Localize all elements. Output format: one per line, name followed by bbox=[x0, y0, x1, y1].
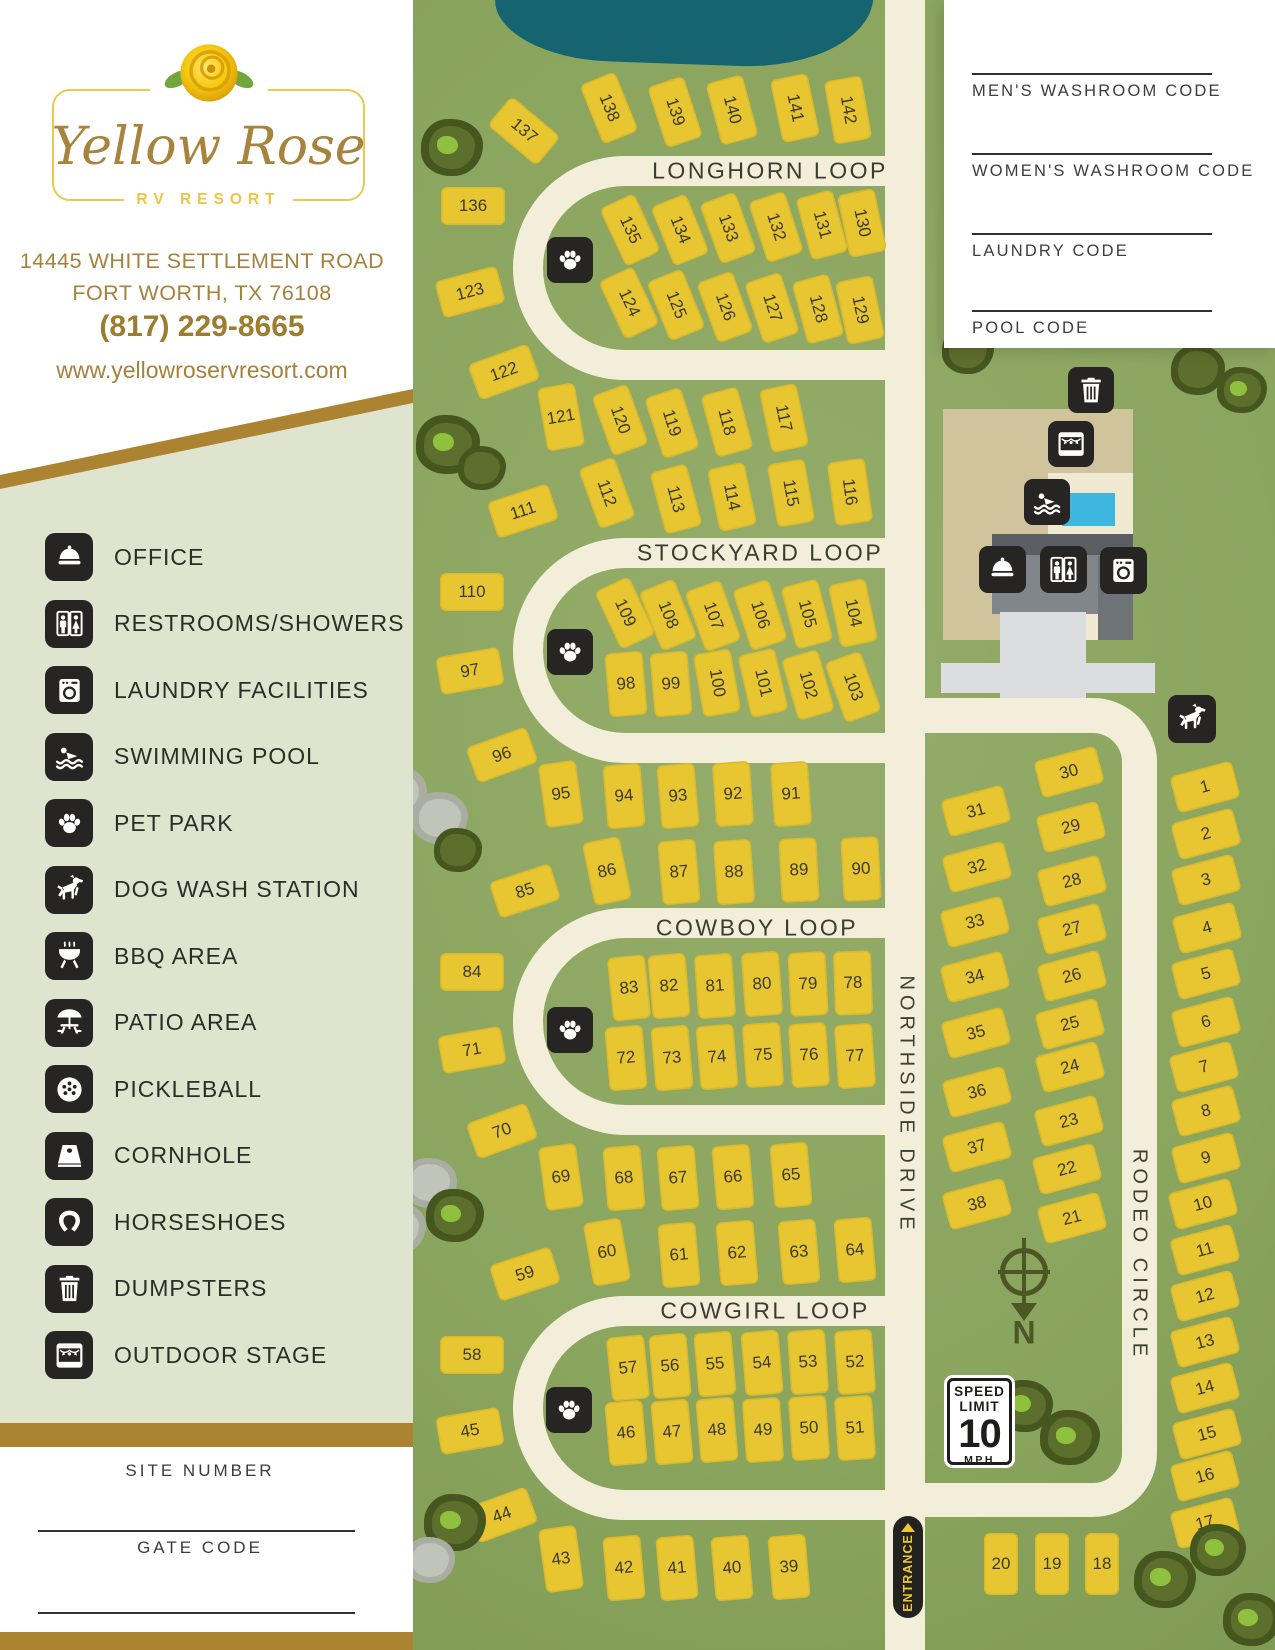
code-field-label: LAUNDRY CODE bbox=[972, 242, 1129, 261]
site-number: 22 bbox=[1055, 1157, 1078, 1181]
site-1[interactable]: 1 bbox=[1169, 760, 1241, 813]
site-121[interactable]: 121 bbox=[537, 382, 586, 452]
legend-item-label: LAUNDRY FACILITIES bbox=[114, 677, 369, 704]
legend-item-horseshoes: HORSESHOES bbox=[45, 1189, 395, 1256]
legend-item-pickleball: PICKLEBALL bbox=[45, 1056, 395, 1123]
laundry-icon bbox=[1100, 547, 1147, 594]
site-number: 19 bbox=[1043, 1554, 1062, 1574]
site-number-label: SITE NUMBER bbox=[0, 1461, 400, 1481]
site-number: 129 bbox=[847, 294, 872, 326]
site-number: 137 bbox=[507, 114, 542, 148]
paw-icon bbox=[547, 629, 593, 675]
site-50[interactable]: 50 bbox=[788, 1395, 830, 1461]
legend-item-label: OUTDOOR STAGE bbox=[114, 1342, 327, 1369]
site-14[interactable]: 14 bbox=[1169, 1361, 1241, 1414]
loop-name-label: LONGHORN LOOP bbox=[652, 158, 888, 185]
site-number: 8 bbox=[1199, 1100, 1213, 1122]
site-61[interactable]: 61 bbox=[657, 1221, 700, 1288]
site-number: 93 bbox=[668, 785, 689, 807]
legend-item-label: BBQ AREA bbox=[114, 943, 238, 970]
site-142[interactable]: 142 bbox=[824, 75, 873, 145]
site-52[interactable]: 52 bbox=[834, 1329, 876, 1395]
northside-drive-road bbox=[885, 0, 925, 1650]
site-97[interactable]: 97 bbox=[435, 647, 505, 696]
legend-item-label: DOG WASH STATION bbox=[114, 876, 360, 903]
site-number: 105 bbox=[794, 598, 821, 631]
loop-name-label: STOCKYARD LOOP bbox=[637, 540, 883, 567]
site-number: 141 bbox=[782, 92, 807, 124]
compass-north-letter: N bbox=[1012, 1315, 1035, 1352]
site-53[interactable]: 53 bbox=[787, 1329, 829, 1395]
horseshoe-icon bbox=[45, 1198, 93, 1246]
site-number: 100 bbox=[705, 667, 730, 698]
site-number: 106 bbox=[746, 598, 774, 631]
site-number: 115 bbox=[779, 478, 803, 508]
site-84[interactable]: 84 bbox=[440, 953, 504, 991]
site-number: 25 bbox=[1058, 1012, 1081, 1036]
site-55[interactable]: 55 bbox=[693, 1330, 736, 1397]
site-number: 116 bbox=[838, 477, 862, 507]
site-69[interactable]: 69 bbox=[538, 1143, 585, 1212]
site-number: 138 bbox=[594, 91, 623, 125]
site-number: 4 bbox=[1200, 917, 1214, 939]
site-11[interactable]: 11 bbox=[1169, 1223, 1241, 1276]
legend-item-outdoor-stage: OUTDOOR STAGE bbox=[45, 1322, 395, 1389]
legend-item-label: RESTROOMS/SHOWERS bbox=[114, 610, 404, 637]
site-number: 20 bbox=[992, 1554, 1011, 1574]
site-number: 63 bbox=[789, 1241, 810, 1263]
site-number: 90 bbox=[851, 859, 871, 880]
entrance-label: ENTRANCE bbox=[901, 1534, 915, 1611]
legend-item-laundry-facilities: LAUNDRY FACILITIES bbox=[45, 657, 395, 724]
site-10[interactable]: 10 bbox=[1167, 1177, 1239, 1230]
dog-icon bbox=[1168, 695, 1216, 743]
site-46[interactable]: 46 bbox=[604, 1399, 647, 1466]
site-141[interactable]: 141 bbox=[770, 73, 820, 144]
legend-item-dog-wash-station: DOG WASH STATION bbox=[45, 857, 395, 924]
site-12[interactable]: 12 bbox=[1169, 1269, 1241, 1322]
code-field-label: MEN'S WASHROOM CODE bbox=[972, 82, 1222, 101]
gray-tree-icon bbox=[413, 1537, 455, 1583]
rose-icon bbox=[159, 37, 259, 111]
site-54[interactable]: 54 bbox=[740, 1329, 783, 1396]
site-number: 136 bbox=[459, 196, 487, 216]
site-number: 132 bbox=[762, 210, 790, 243]
gray-tree-icon bbox=[413, 1202, 426, 1254]
site-number: 87 bbox=[669, 861, 690, 883]
site-2[interactable]: 2 bbox=[1170, 807, 1242, 860]
site-117[interactable]: 117 bbox=[759, 383, 809, 454]
site-64[interactable]: 64 bbox=[833, 1216, 876, 1283]
site-number: 55 bbox=[705, 1353, 726, 1375]
legend-item-label: HORSESHOES bbox=[114, 1209, 286, 1236]
code-field-label: WOMEN'S WASHROOM CODE bbox=[972, 162, 1255, 181]
site-number: 51 bbox=[845, 1417, 865, 1438]
site-number: 83 bbox=[619, 977, 640, 999]
site-number: 16 bbox=[1193, 1464, 1216, 1488]
site-120[interactable]: 120 bbox=[591, 383, 649, 456]
site-83[interactable]: 83 bbox=[607, 954, 651, 1022]
site-number: 68 bbox=[614, 1167, 635, 1189]
site-number: 110 bbox=[458, 582, 485, 602]
site-number: 97 bbox=[459, 660, 481, 683]
site-73[interactable]: 73 bbox=[650, 1024, 693, 1091]
site-number: 39 bbox=[779, 1556, 800, 1578]
site-number: 33 bbox=[963, 910, 986, 934]
site-92[interactable]: 92 bbox=[712, 761, 754, 827]
dog-icon bbox=[45, 866, 93, 914]
code-blank-line[interactable] bbox=[972, 153, 1212, 155]
site-3[interactable]: 3 bbox=[1170, 853, 1242, 906]
site-140[interactable]: 140 bbox=[705, 74, 758, 146]
site-number-blank bbox=[38, 1530, 355, 1532]
legend-item-dumpsters: DUMPSTERS bbox=[45, 1256, 395, 1323]
site-number: 124 bbox=[614, 286, 644, 320]
legend-item-label: OFFICE bbox=[114, 544, 204, 571]
site-number: 57 bbox=[618, 1357, 639, 1379]
legend-item-pet-park: PET PARK bbox=[45, 790, 395, 857]
site-89[interactable]: 89 bbox=[778, 837, 819, 903]
site-number: 73 bbox=[662, 1047, 683, 1069]
site-number: 36 bbox=[965, 1080, 988, 1104]
site-number: 69 bbox=[550, 1166, 572, 1188]
site-47[interactable]: 47 bbox=[650, 1398, 693, 1465]
site-113[interactable]: 113 bbox=[649, 463, 702, 535]
site-78[interactable]: 78 bbox=[833, 950, 873, 1015]
site-91[interactable]: 91 bbox=[770, 761, 812, 827]
site-number: 140 bbox=[719, 94, 746, 127]
code-blank-line[interactable] bbox=[972, 310, 1212, 312]
speed-limit-sign: SPEED LIMIT 10 MPH bbox=[944, 1375, 1015, 1468]
site-96[interactable]: 96 bbox=[465, 726, 538, 784]
site-139[interactable]: 139 bbox=[647, 76, 703, 149]
tree-icon bbox=[426, 1189, 484, 1242]
site-number: 52 bbox=[845, 1351, 865, 1372]
tree-icon bbox=[1217, 367, 1267, 413]
site-19[interactable]: 19 bbox=[1035, 1533, 1069, 1595]
code-field-label: POOL CODE bbox=[972, 319, 1089, 338]
site-number: 104 bbox=[840, 597, 865, 629]
site-number: 56 bbox=[660, 1355, 681, 1377]
site-number: 70 bbox=[490, 1118, 515, 1143]
site-67[interactable]: 67 bbox=[656, 1144, 699, 1211]
code-blank-line[interactable] bbox=[972, 73, 1212, 75]
site-85[interactable]: 85 bbox=[489, 863, 562, 919]
site-115[interactable]: 115 bbox=[767, 458, 816, 528]
site-number: 120 bbox=[606, 403, 634, 437]
site-110[interactable]: 110 bbox=[440, 573, 504, 611]
site-88[interactable]: 88 bbox=[713, 839, 755, 905]
entrance-marker: ENTRANCE bbox=[893, 1516, 923, 1618]
site-number: 5 bbox=[1199, 963, 1213, 985]
site-49[interactable]: 49 bbox=[742, 1397, 784, 1463]
stage-icon bbox=[45, 1331, 93, 1379]
entrance-arrow-icon bbox=[901, 1523, 915, 1532]
site-42[interactable]: 42 bbox=[602, 1534, 645, 1601]
site-number: 101 bbox=[750, 667, 776, 699]
site-40[interactable]: 40 bbox=[710, 1534, 753, 1601]
site-number: 47 bbox=[662, 1421, 683, 1443]
site-number: 28 bbox=[1060, 869, 1083, 893]
tree-icon bbox=[421, 119, 483, 176]
site-number: 108 bbox=[653, 598, 682, 632]
resort-site-map: N SPEED LIMIT 10 MPH ENTRANCE MEN'S WASH… bbox=[413, 0, 1275, 1650]
site-112[interactable]: 112 bbox=[578, 456, 636, 529]
site-number: 72 bbox=[616, 1047, 637, 1069]
logo: Yellow Rose RV RESORT bbox=[52, 89, 365, 201]
website-url: www.yellowroservresort.com bbox=[0, 357, 404, 384]
site-number: 96 bbox=[490, 742, 515, 767]
site-number: 84 bbox=[463, 962, 482, 982]
site-number: 94 bbox=[614, 785, 635, 807]
site-48[interactable]: 48 bbox=[695, 1396, 738, 1463]
site-98[interactable]: 98 bbox=[604, 650, 647, 717]
paw-icon bbox=[547, 237, 593, 283]
site-number: 86 bbox=[596, 859, 619, 882]
site-77[interactable]: 77 bbox=[834, 1023, 876, 1089]
legend-item-label: PATIO AREA bbox=[114, 1009, 257, 1036]
site-70[interactable]: 70 bbox=[465, 1102, 538, 1160]
tree-icon bbox=[434, 828, 482, 872]
bell-icon bbox=[979, 546, 1026, 593]
site-number: 118 bbox=[714, 406, 740, 437]
site-122[interactable]: 122 bbox=[467, 343, 540, 401]
site-137[interactable]: 137 bbox=[487, 96, 560, 166]
site-43[interactable]: 43 bbox=[538, 1525, 585, 1594]
site-number: 79 bbox=[798, 974, 818, 995]
site-number: 49 bbox=[753, 1419, 773, 1440]
legend-item-label: PET PARK bbox=[114, 810, 234, 837]
site-number: 82 bbox=[659, 975, 680, 997]
legend-item-label: CORNHOLE bbox=[114, 1142, 252, 1169]
site-number: 117 bbox=[771, 403, 796, 434]
site-90[interactable]: 90 bbox=[840, 836, 881, 902]
site-number: 37 bbox=[965, 1135, 988, 1159]
site-62[interactable]: 62 bbox=[715, 1219, 758, 1286]
site-number: 134 bbox=[665, 213, 694, 247]
site-119[interactable]: 119 bbox=[644, 387, 700, 460]
site-74[interactable]: 74 bbox=[695, 1023, 738, 1090]
site-number: 75 bbox=[753, 1044, 773, 1065]
patio-icon bbox=[45, 999, 93, 1047]
bbq-icon bbox=[45, 932, 93, 980]
site-number: 133 bbox=[714, 211, 742, 245]
site-15[interactable]: 15 bbox=[1171, 1407, 1243, 1460]
legend-item-cornhole: CORNHOLE bbox=[45, 1123, 395, 1190]
tree-icon bbox=[1223, 1593, 1275, 1646]
paw-icon bbox=[547, 1007, 593, 1053]
site-4[interactable]: 4 bbox=[1171, 901, 1243, 954]
site-number: 6 bbox=[1199, 1011, 1213, 1033]
gold-band-top bbox=[0, 1423, 413, 1447]
tree-icon bbox=[1134, 1551, 1196, 1608]
site-number: 61 bbox=[669, 1244, 690, 1266]
site-number: 27 bbox=[1060, 917, 1083, 941]
site-number: 59 bbox=[513, 1262, 537, 1287]
site-number: 91 bbox=[781, 783, 801, 804]
legend-item-bbq-area: BBQ AREA bbox=[45, 923, 395, 990]
site-number: 99 bbox=[661, 673, 682, 695]
site-138[interactable]: 138 bbox=[579, 71, 638, 145]
site-number: 60 bbox=[596, 1241, 618, 1264]
site-number: 18 bbox=[1093, 1554, 1112, 1574]
tree-icon bbox=[1040, 1410, 1100, 1465]
site-72[interactable]: 72 bbox=[604, 1024, 647, 1091]
site-95[interactable]: 95 bbox=[538, 760, 585, 829]
site-number: 127 bbox=[758, 291, 786, 324]
site-94[interactable]: 94 bbox=[602, 762, 645, 829]
site-number: 113 bbox=[663, 483, 689, 514]
site-63[interactable]: 63 bbox=[777, 1218, 820, 1285]
site-45[interactable]: 45 bbox=[435, 1407, 505, 1456]
site-number: 78 bbox=[843, 973, 863, 994]
site-number: 65 bbox=[781, 1164, 802, 1186]
site-number: 92 bbox=[723, 783, 743, 804]
site-116[interactable]: 116 bbox=[827, 458, 874, 527]
site-118[interactable]: 118 bbox=[700, 386, 753, 458]
site-number: 3 bbox=[1199, 869, 1213, 891]
site-18[interactable]: 18 bbox=[1085, 1533, 1119, 1595]
legend-item-label: SWIMMING POOL bbox=[114, 743, 320, 770]
site-5[interactable]: 5 bbox=[1170, 947, 1242, 1000]
site-75[interactable]: 75 bbox=[742, 1022, 784, 1088]
site-99[interactable]: 99 bbox=[649, 650, 692, 717]
site-number: 24 bbox=[1058, 1055, 1081, 1079]
address-line-1: 14445 WHITE SETTLEMENT ROAD bbox=[0, 249, 404, 274]
site-number: 41 bbox=[667, 1557, 688, 1579]
site-number: 76 bbox=[799, 1044, 819, 1065]
code-blank-line[interactable] bbox=[972, 233, 1212, 235]
site-65[interactable]: 65 bbox=[769, 1141, 812, 1208]
loop-name-label: COWGIRL LOOP bbox=[660, 1298, 869, 1325]
site-71[interactable]: 71 bbox=[437, 1026, 507, 1075]
address-line-2: FORT WORTH, TX 76108 bbox=[0, 281, 404, 306]
site-87[interactable]: 87 bbox=[657, 838, 700, 905]
logo-subtitle: RV RESORT bbox=[54, 191, 363, 209]
site-number: 128 bbox=[805, 293, 832, 326]
trash-icon bbox=[45, 1265, 93, 1313]
site-39[interactable]: 39 bbox=[767, 1533, 810, 1600]
site-56[interactable]: 56 bbox=[648, 1332, 691, 1399]
legend-item-office: OFFICE bbox=[45, 524, 395, 591]
street-name-label: NORTHSIDE DRIVE bbox=[895, 975, 918, 1234]
sidebar: Yellow Rose RV RESORT 14445 WHITE SETTLE… bbox=[0, 0, 413, 1650]
site-number: 54 bbox=[752, 1352, 773, 1374]
site-number: 29 bbox=[1059, 815, 1082, 839]
site-number: 34 bbox=[963, 965, 986, 989]
gate-code-blank bbox=[38, 1612, 355, 1614]
site-number: 142 bbox=[836, 94, 861, 125]
site-number: 23 bbox=[1057, 1109, 1080, 1133]
site-number: 38 bbox=[965, 1192, 988, 1216]
pool-icon bbox=[1024, 479, 1070, 525]
site-111[interactable]: 111 bbox=[487, 483, 560, 539]
site-81[interactable]: 81 bbox=[694, 953, 736, 1019]
site-number: 139 bbox=[661, 95, 689, 128]
site-123[interactable]: 123 bbox=[434, 265, 506, 318]
paw-icon bbox=[546, 1387, 592, 1433]
site-number: 14 bbox=[1193, 1376, 1216, 1400]
site-number: 122 bbox=[487, 358, 521, 386]
site-number: 95 bbox=[550, 783, 572, 805]
site-number: 46 bbox=[616, 1422, 637, 1444]
site-number: 15 bbox=[1195, 1422, 1218, 1446]
site-9[interactable]: 9 bbox=[1170, 1131, 1242, 1184]
tree-icon bbox=[1190, 1524, 1246, 1576]
site-number: 135 bbox=[615, 213, 645, 247]
site-114[interactable]: 114 bbox=[707, 462, 757, 533]
site-51[interactable]: 51 bbox=[834, 1395, 876, 1461]
site-number: 74 bbox=[707, 1046, 728, 1068]
street-name-label: RODEO CIRCLE bbox=[1128, 1149, 1151, 1361]
site-13[interactable]: 13 bbox=[1169, 1315, 1241, 1368]
site-number: 130 bbox=[849, 207, 874, 239]
site-number: 13 bbox=[1193, 1330, 1216, 1354]
compass-ring bbox=[1000, 1248, 1048, 1296]
site-number: 71 bbox=[461, 1039, 483, 1062]
site-80[interactable]: 80 bbox=[741, 951, 783, 1017]
site-number: 126 bbox=[711, 290, 739, 324]
pickle-icon bbox=[45, 1065, 93, 1113]
site-number: 107 bbox=[699, 599, 727, 633]
wc-icon bbox=[1040, 546, 1087, 593]
site-60[interactable]: 60 bbox=[583, 1217, 632, 1287]
site-82[interactable]: 82 bbox=[647, 952, 690, 1019]
tree-icon bbox=[458, 446, 506, 490]
site-number: 103 bbox=[839, 670, 867, 704]
site-number: 119 bbox=[658, 407, 685, 439]
site-57[interactable]: 57 bbox=[606, 1334, 650, 1402]
site-number: 66 bbox=[723, 1166, 744, 1188]
laundry-icon bbox=[45, 666, 93, 714]
site-86[interactable]: 86 bbox=[582, 836, 632, 907]
site-number: 112 bbox=[593, 477, 621, 509]
site-93[interactable]: 93 bbox=[656, 762, 699, 829]
site-6[interactable]: 6 bbox=[1170, 995, 1242, 1048]
paw-icon bbox=[45, 799, 93, 847]
site-59[interactable]: 59 bbox=[489, 1246, 562, 1302]
speed-sign-word-1: SPEED bbox=[944, 1384, 1015, 1399]
site-number: 111 bbox=[508, 497, 539, 524]
site-number: 131 bbox=[809, 209, 836, 242]
site-79[interactable]: 79 bbox=[787, 951, 828, 1017]
bell-icon bbox=[45, 533, 93, 581]
gate-code-label: GATE CODE bbox=[0, 1538, 400, 1558]
speed-limit-value: 10 bbox=[944, 1414, 1015, 1454]
legend: OFFICERESTROOMS/SHOWERSLAUNDRY FACILITIE… bbox=[45, 524, 395, 1389]
legend-item-restrooms-showers: RESTROOMS/SHOWERS bbox=[45, 591, 395, 658]
site-number: 114 bbox=[719, 482, 744, 513]
site-76[interactable]: 76 bbox=[788, 1022, 830, 1088]
site-20[interactable]: 20 bbox=[984, 1533, 1018, 1595]
site-136[interactable]: 136 bbox=[441, 187, 505, 225]
site-number: 12 bbox=[1193, 1284, 1216, 1308]
site-58[interactable]: 58 bbox=[440, 1336, 504, 1374]
site-number: 88 bbox=[724, 861, 744, 882]
site-68[interactable]: 68 bbox=[602, 1144, 645, 1211]
site-66[interactable]: 66 bbox=[711, 1143, 754, 1210]
site-number: 98 bbox=[616, 673, 637, 695]
phone-number: (817) 229-8665 bbox=[0, 310, 404, 344]
site-number: 53 bbox=[798, 1351, 818, 1372]
pond bbox=[493, 0, 875, 71]
site-number: 21 bbox=[1060, 1206, 1083, 1230]
site-41[interactable]: 41 bbox=[655, 1534, 698, 1601]
site-number: 7 bbox=[1197, 1056, 1211, 1078]
site-number: 44 bbox=[490, 1502, 515, 1527]
site-number: 80 bbox=[752, 973, 772, 994]
site-number: 58 bbox=[463, 1345, 482, 1365]
